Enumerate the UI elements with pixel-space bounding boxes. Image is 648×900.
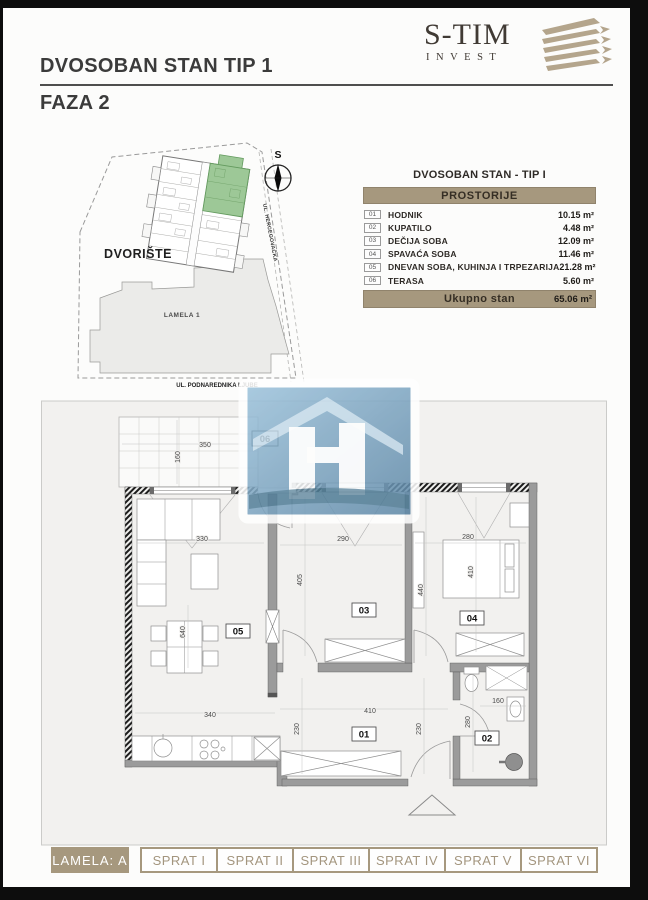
dim-r3-d: 405 bbox=[297, 574, 304, 586]
room-label-02: 02 bbox=[475, 731, 499, 745]
table-row: 02 KUPATILO 4.48 m² bbox=[363, 221, 596, 234]
wardrobe-room3 bbox=[325, 639, 405, 662]
exterior-wall-right bbox=[529, 483, 537, 786]
floor-tabs: SPRAT I SPRAT II SPRAT III SPRAT IV SPRA… bbox=[140, 847, 598, 873]
wardrobe-room4 bbox=[456, 633, 524, 656]
street-side-label: UL. HERCEGOVAČKA bbox=[261, 203, 279, 262]
room-name: HODNIK bbox=[388, 210, 558, 220]
room-name: TERASA bbox=[388, 276, 563, 286]
tab-sprat-5[interactable]: SPRAT V bbox=[444, 847, 522, 873]
frame-edge-right bbox=[630, 0, 648, 900]
table-rows: 01 HODNIK 10.15 m² 02 KUPATILO 4.48 m² 0… bbox=[363, 208, 596, 287]
kitchen-counter bbox=[132, 734, 280, 761]
phase-subtitle: FAZA 2 bbox=[40, 92, 110, 115]
dim-hall-w: 410 bbox=[364, 708, 376, 715]
room-number-badge: 03 bbox=[364, 236, 381, 246]
wall-room3-room4 bbox=[405, 492, 412, 663]
dim-terrace-d: 160 bbox=[175, 451, 182, 463]
room-number-badge: 06 bbox=[364, 276, 381, 286]
dim-bath-d: 280 bbox=[465, 716, 472, 728]
tab-sprat-6[interactable]: SPRAT VI bbox=[520, 847, 598, 873]
title-divider bbox=[40, 84, 613, 86]
total-area: 65.06 m² bbox=[554, 291, 592, 307]
shaft bbox=[266, 610, 279, 643]
courtyard-label: DVORIŠTE bbox=[104, 246, 172, 261]
dim-r4-d: 410 bbox=[468, 566, 475, 578]
window-room3 bbox=[322, 483, 388, 492]
bed-room4 bbox=[443, 540, 519, 598]
room-label-06: 06 bbox=[252, 431, 278, 446]
room-area: 12.09 m² bbox=[558, 236, 596, 246]
table-row: 06 TERASA 5.60 m² bbox=[363, 274, 596, 287]
svg-text:06: 06 bbox=[260, 434, 271, 445]
footer-tabs: LAMELA: A bbox=[51, 847, 129, 873]
frame-edge-top bbox=[0, 0, 648, 8]
table-row: 05 DNEVAN SOBA, KUHINJA I TRPEZARIJA 21.… bbox=[363, 261, 596, 274]
tab-sprat-3[interactable]: SPRAT III bbox=[292, 847, 370, 873]
nightstand bbox=[510, 503, 529, 527]
sink-icon bbox=[154, 739, 172, 757]
room-area: 5.60 m² bbox=[563, 276, 596, 286]
dim-sofa-w: 330 bbox=[196, 536, 208, 543]
room-number-badge: 02 bbox=[364, 223, 381, 233]
coffee-table bbox=[191, 554, 218, 589]
room-number-badge: 05 bbox=[364, 263, 381, 273]
lamela-building-shape: LAMELA 1 bbox=[90, 259, 289, 373]
room-number-badge: 04 bbox=[364, 249, 381, 259]
room-name: SPAVAĆA SOBA bbox=[388, 249, 558, 259]
page: DVOSOBAN STAN TIP 1 FAZA 2 S-TIM INVEST bbox=[0, 0, 648, 900]
tab-sprat-4[interactable]: SPRAT IV bbox=[368, 847, 446, 873]
table-header: PROSTORIJE bbox=[363, 187, 596, 204]
table-total-row: Ukupno stan 65.06 m² bbox=[363, 290, 596, 308]
toilet-icon bbox=[464, 667, 479, 692]
room-label-04: 04 bbox=[460, 611, 484, 625]
room-name: DNEVAN SOBA, KUHINJA I TRPEZARIJA bbox=[388, 262, 559, 272]
tab-sprat-2[interactable]: SPRAT II bbox=[216, 847, 294, 873]
room-label-03: 03 bbox=[352, 603, 376, 617]
table-title: DVOSOBAN STAN - TIP I bbox=[363, 169, 596, 185]
dim-table-h: 640 bbox=[180, 626, 187, 638]
company-logo: S-TIM INVEST bbox=[424, 20, 614, 82]
dim-hall-d1: 230 bbox=[294, 723, 301, 735]
svg-text:01: 01 bbox=[359, 730, 370, 741]
window-living bbox=[150, 487, 235, 494]
dim-bath-w: 160 bbox=[492, 698, 504, 705]
svg-text:02: 02 bbox=[482, 734, 493, 745]
bath-sink-icon bbox=[507, 697, 524, 721]
dim-terrace-w: 350 bbox=[199, 442, 211, 449]
room-name: KUPATILO bbox=[388, 223, 563, 233]
table-row: 01 HODNIK 10.15 m² bbox=[363, 208, 596, 221]
table-row: 04 SPAVAĆA SOBA 11.46 m² bbox=[363, 248, 596, 261]
svg-text:03: 03 bbox=[359, 606, 370, 617]
lamela-label: LAMELA 1 bbox=[164, 312, 200, 319]
wardrobe-hall bbox=[281, 751, 401, 776]
fridge-icon bbox=[254, 737, 280, 760]
svg-text:04: 04 bbox=[467, 614, 478, 625]
room-number-badge: 01 bbox=[364, 210, 381, 220]
room-label-01: 01 bbox=[352, 727, 376, 741]
page-title: DVOSOBAN STAN TIP 1 bbox=[40, 55, 273, 78]
street-bottom-label: UL. PODNAREDNIKA LJUBE bbox=[176, 383, 257, 389]
room-area: 10.15 m² bbox=[558, 210, 596, 220]
rooms-table: DVOSOBAN STAN - TIP I PROSTORIJE 01 HODN… bbox=[363, 169, 596, 308]
svg-text:05: 05 bbox=[233, 627, 244, 638]
room-area: 4.48 m² bbox=[563, 223, 596, 233]
logo-swoosh-icon bbox=[536, 14, 616, 80]
site-plan: LAMELA 1 bbox=[60, 140, 360, 402]
terrace-area bbox=[119, 417, 258, 487]
room-area: 11.46 m² bbox=[558, 249, 596, 259]
dim-r3-d2: 440 bbox=[418, 584, 425, 596]
window-room4 bbox=[458, 483, 510, 492]
dim-r3-w: 290 bbox=[337, 536, 349, 543]
room-label-05: 05 bbox=[226, 624, 250, 638]
room-name: DEČIJA SOBA bbox=[388, 236, 558, 246]
frame-edge-left bbox=[0, 0, 3, 900]
tab-lamela-a[interactable]: LAMELA: A bbox=[51, 847, 129, 873]
tab-sprat-1[interactable]: SPRAT I bbox=[140, 847, 218, 873]
dim-kitchen-w: 340 bbox=[204, 712, 216, 719]
shower-icon bbox=[486, 666, 527, 690]
table-row: 03 DEČIJA SOBA 12.09 m² bbox=[363, 234, 596, 247]
highlighted-unit bbox=[203, 163, 250, 217]
wall-living-hall bbox=[268, 494, 277, 697]
dim-r4-w: 280 bbox=[462, 534, 474, 541]
north-label: S bbox=[274, 149, 281, 161]
frame-edge-bottom bbox=[0, 887, 648, 900]
room-area: 21.28 m² bbox=[559, 262, 597, 272]
floor-plan: 350 160 330 640 340 290 405 440 280 410 … bbox=[40, 400, 608, 846]
total-label: Ukupno stan bbox=[444, 293, 515, 305]
dim-hall-d2: 230 bbox=[416, 723, 423, 735]
compass: S bbox=[265, 149, 291, 192]
exterior-wall-left bbox=[125, 487, 132, 767]
